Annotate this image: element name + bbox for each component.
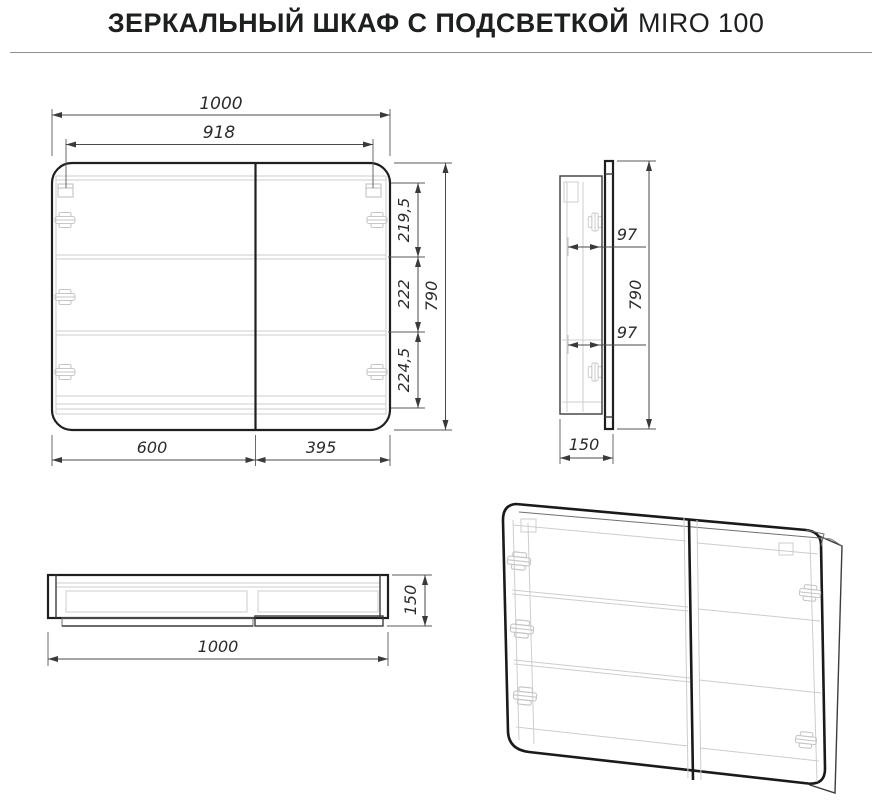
dim-side-total-height: 790 [617,161,656,429]
dim-front-bottom-section: 224,5 [391,332,425,408]
front-view-hinges [55,213,387,380]
side-mirror-door [605,161,613,429]
dim-top-total-width: 1000 [48,632,388,666]
dim-front-middle-section: 222 [388,257,425,332]
dim-front-left-door: 600 [52,435,256,466]
dim-label-front-219-5: 219,5 [395,198,413,242]
side-view-hinges [588,213,602,381]
dim-front-mounting-width: 918 [66,123,373,188]
dim-front-top-section: 219,5 [388,183,425,257]
dim-label-side-97-upper: 97 [617,225,638,244]
perspective-view [503,504,842,793]
dim-label-side-150: 150 [569,435,600,454]
top-view-interior [56,583,380,612]
dim-label-top-1000: 1000 [198,637,239,656]
dim-label-front-222: 222 [395,279,413,309]
dim-top-total-depth: 150 [387,575,432,626]
side-view: 97 97 790 150 [560,161,656,464]
dim-label-front-395: 395 [306,438,337,457]
dim-label-front-224-5: 224,5 [395,348,413,392]
dim-label-front-918: 918 [203,123,236,143]
dim-label-front-600: 600 [137,438,168,457]
drawing-page: ЗЕРКАЛЬНЫЙ ШКАФ С ПОДСВЕТКОЙ MIRO 100 [0,0,872,800]
side-cabinet-body [560,176,602,414]
dim-label-front-1000: 1000 [199,94,242,114]
front-cabinet-outline [52,163,390,430]
front-view: 1000 918 219,5 222 [52,94,452,466]
dim-label-side-97-lower: 97 [617,323,638,342]
dim-front-right-door: 395 [256,435,391,466]
technical-drawing: 1000 918 219,5 222 [0,0,872,800]
dim-label-front-790: 790 [422,281,441,312]
dim-label-side-790: 790 [626,280,645,311]
dim-side-upper-hinge-depth: 97 [568,225,646,256]
perspective-front-face [503,504,825,784]
front-view-shelf-lines [56,176,386,414]
front-view-mount-brackets [58,184,381,197]
dim-side-lower-hinge-depth: 97 [568,323,646,354]
dim-label-top-150: 150 [401,585,420,616]
top-view: 1000 150 [48,575,432,666]
